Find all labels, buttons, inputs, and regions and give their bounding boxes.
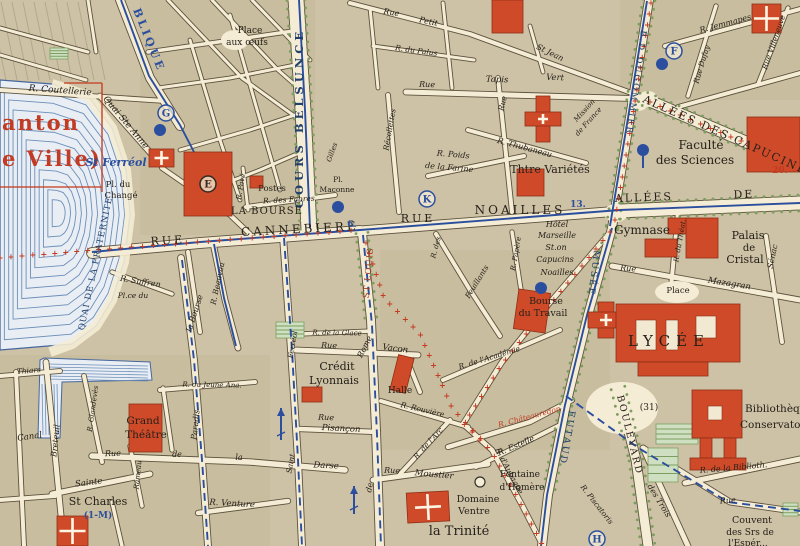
svg-text:+: + [386,298,393,308]
svg-text:+: + [30,250,37,260]
svg-text:+: + [426,350,433,360]
svg-text:+: + [205,236,212,246]
svg-text:+: + [117,242,124,252]
svg-text:+: + [410,322,417,332]
svg-text:+: + [216,235,223,245]
svg-text:+: + [417,330,424,340]
svg-text:+: + [496,363,503,373]
map-label: RUE [150,233,185,248]
map-label: Halle [388,386,412,396]
map-label: COURS BELSUNCE [292,28,306,208]
map-label: Darse [312,460,339,471]
svg-text:+: + [648,0,655,8]
map-label: de [172,450,182,459]
svg-text:E: E [204,180,212,191]
map-label: Pl. du [106,180,131,190]
map-label: Pl. [333,175,343,184]
svg-text:+: + [40,249,47,259]
map-label: Tapis [486,75,510,86]
svg-text:+: + [462,417,469,427]
svg-text:+: + [558,286,565,296]
map-label: St.on [545,243,566,252]
svg-text:+: + [579,260,586,270]
map-canvas: ++++++++++++++++++++++++++++++++++++++++… [0,0,800,546]
map-label: Thtre Variétés [510,163,590,176]
svg-text:+: + [455,409,462,419]
map-label: (31) [640,402,658,413]
svg-text:+: + [484,442,491,452]
map-label: Domaine [457,494,500,505]
svg-text:+: + [617,182,624,192]
map-label: St Ferréol [85,156,146,169]
map-label: Cristal [726,253,764,266]
map-marker-G: G [158,105,174,121]
svg-text:+: + [490,372,497,382]
svg-text:+: + [523,509,530,519]
svg-text:+: + [607,227,614,237]
map-marker-H: H [589,531,605,546]
map-label: Rue [320,341,337,351]
map-label: 20. [772,166,788,176]
map-label: Gymnase [614,223,670,237]
svg-text:+: + [538,538,545,546]
svg-text:+: + [443,390,450,400]
svg-text:+: + [614,204,621,214]
svg-text:+: + [51,248,58,258]
map-label: (1-M) [84,510,112,521]
svg-text:+: + [0,253,3,263]
svg-text:+: + [421,340,428,350]
map-label: des Sciences [656,153,734,167]
svg-text:+: + [430,360,437,370]
map-label: NOAILLES [475,203,566,217]
svg-text:K: K [423,195,432,206]
svg-text:+: + [128,242,135,252]
map-label: Hôtel [545,220,569,229]
svg-text:+: + [646,8,653,18]
svg-text:+: + [470,425,477,435]
map-label: Ventre [457,506,490,517]
map-label: 6. [347,220,356,230]
svg-text:+: + [19,251,26,261]
map-label: la [235,453,243,462]
svg-text:+: + [439,380,446,390]
svg-text:+: + [106,243,113,253]
svg-text:G: G [162,109,171,120]
map-label: Palais [732,229,765,242]
map-label: Place [666,286,689,296]
map-label: Noailles [539,268,573,277]
map-label: 13. [570,200,586,210]
svg-text:+: + [363,238,370,248]
svg-text:+: + [621,160,628,170]
map-label: aux œufs [226,38,268,48]
map-label: LA BOURSE [231,206,303,217]
map-label: anton [2,110,80,135]
map-label: Faculté [679,138,724,152]
map-label: Place [238,26,263,36]
map-label: St Charles [69,495,128,508]
map-label: Théâtre [125,429,167,441]
svg-text:+: + [402,314,409,324]
map-viewport: ++++++++++++++++++++++++++++++++++++++++… [0,0,800,546]
svg-text:+: + [8,252,15,262]
map-marker-K: K [419,191,435,207]
map-label: Maconne [320,185,356,194]
svg-text:+: + [484,382,491,392]
map-label: R. du Jeune Ana. [181,380,241,389]
map-label: des Srs de [726,528,774,538]
map-label: RUE [401,212,436,225]
map-label: Marseille [537,231,576,240]
map-label: Crédit [319,360,355,373]
map-label: Rue [104,449,121,459]
svg-text:+: + [194,237,201,247]
svg-text:F: F [670,47,677,58]
map-label: Rue [719,495,737,505]
svg-text:+: + [62,247,69,257]
svg-text:+: + [73,246,80,256]
svg-text:+: + [478,391,485,401]
svg-text:+: + [472,400,479,410]
map-label: Capucins [536,255,573,264]
map-label: du Travail [519,308,568,319]
svg-text:+: + [394,306,401,316]
map-label: Rue [317,413,334,423]
map-label: Rue [619,263,637,273]
map-label: Pisançon [321,423,361,435]
svg-text:+: + [376,279,383,289]
svg-text:+: + [533,528,540,538]
map-label: Conservatoire [740,419,800,431]
svg-text:+: + [619,171,626,181]
map-label: Vert [546,73,565,84]
map-label: LYCÉE [628,332,710,350]
map-label: ALLÉES [614,189,674,205]
map-label: R. de la Glace [311,329,361,338]
map-label: l'Espér... [728,538,768,546]
map-label: Couvent [732,515,772,526]
map-label: Pl.ce du [117,291,149,300]
svg-text:+: + [625,139,632,149]
svg-text:+: + [600,235,607,245]
map-label: Lyonnais [309,374,359,387]
map-label: Rue [383,466,400,476]
svg-text:+: + [565,277,572,287]
svg-text:+: + [84,245,91,255]
svg-text:+: + [448,400,455,410]
svg-text:+: + [518,499,525,509]
svg-text:+: + [528,518,535,528]
map-label: DE [733,188,754,202]
svg-text:+: + [623,150,630,160]
map-label: Rue [418,80,435,90]
map-label: Grand [126,415,159,427]
map-label: Bourse [529,296,563,307]
svg-text:H: H [592,535,601,546]
svg-text:+: + [435,370,442,380]
map-label: Postes [258,184,286,194]
map-label: Bibliothèque [745,403,800,415]
svg-text:+: + [139,241,146,251]
map-label: la Trinité [429,524,490,539]
svg-text:+: + [477,433,484,443]
svg-text:+: + [227,234,234,244]
map-marker-F: F [666,43,682,59]
map-marker-E: E [200,176,216,192]
svg-text:+: + [644,19,651,29]
